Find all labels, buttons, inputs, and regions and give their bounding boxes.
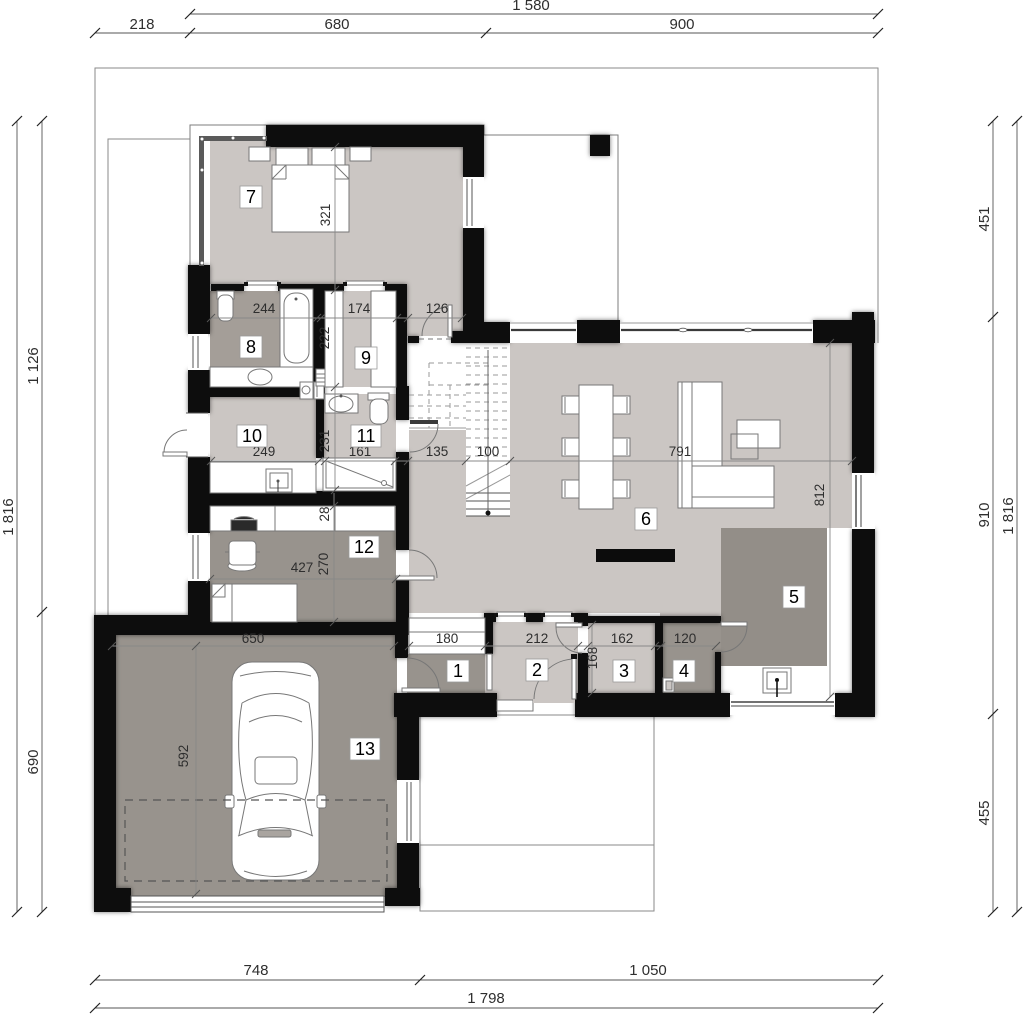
svg-text:13: 13 xyxy=(355,739,375,759)
svg-text:451: 451 xyxy=(976,206,993,231)
svg-text:650: 650 xyxy=(242,631,265,646)
svg-text:1 798: 1 798 xyxy=(467,990,505,1007)
svg-text:1: 1 xyxy=(453,661,463,681)
svg-text:10: 10 xyxy=(242,426,262,446)
svg-text:3: 3 xyxy=(619,661,629,681)
svg-text:427: 427 xyxy=(291,560,314,575)
svg-text:690: 690 xyxy=(25,749,42,774)
svg-text:162: 162 xyxy=(611,631,634,646)
svg-text:11: 11 xyxy=(357,426,376,446)
svg-text:231: 231 xyxy=(317,430,332,453)
svg-text:680: 680 xyxy=(324,16,349,33)
svg-text:900: 900 xyxy=(669,16,694,33)
svg-text:2: 2 xyxy=(532,660,542,680)
svg-text:7: 7 xyxy=(246,187,256,207)
svg-text:592: 592 xyxy=(176,745,191,768)
svg-text:812: 812 xyxy=(812,484,827,507)
svg-text:6: 6 xyxy=(641,509,651,529)
svg-text:1 050: 1 050 xyxy=(629,962,667,979)
svg-text:1 580: 1 580 xyxy=(512,0,550,14)
svg-text:218: 218 xyxy=(129,16,154,33)
svg-text:9: 9 xyxy=(361,348,371,368)
svg-text:244: 244 xyxy=(253,301,276,316)
svg-text:120: 120 xyxy=(674,631,697,646)
svg-text:1 816: 1 816 xyxy=(0,498,17,536)
svg-text:12: 12 xyxy=(354,537,374,557)
svg-text:791: 791 xyxy=(669,444,692,459)
svg-text:100: 100 xyxy=(477,444,500,459)
svg-text:28: 28 xyxy=(317,506,332,521)
svg-text:748: 748 xyxy=(243,962,268,979)
svg-text:168: 168 xyxy=(585,647,600,670)
svg-text:1 816: 1 816 xyxy=(1000,497,1017,535)
svg-text:174: 174 xyxy=(348,301,371,316)
svg-text:270: 270 xyxy=(316,553,331,576)
svg-text:126: 126 xyxy=(426,301,449,316)
svg-text:4: 4 xyxy=(679,661,689,681)
svg-text:5: 5 xyxy=(789,587,799,607)
svg-text:321: 321 xyxy=(318,204,333,227)
svg-text:910: 910 xyxy=(976,502,993,527)
svg-text:1 126: 1 126 xyxy=(25,347,42,385)
svg-text:180: 180 xyxy=(436,631,459,646)
svg-text:8: 8 xyxy=(246,337,256,357)
svg-text:135: 135 xyxy=(426,444,449,459)
svg-text:455: 455 xyxy=(976,800,993,825)
svg-text:222: 222 xyxy=(317,327,332,350)
svg-text:212: 212 xyxy=(526,631,549,646)
